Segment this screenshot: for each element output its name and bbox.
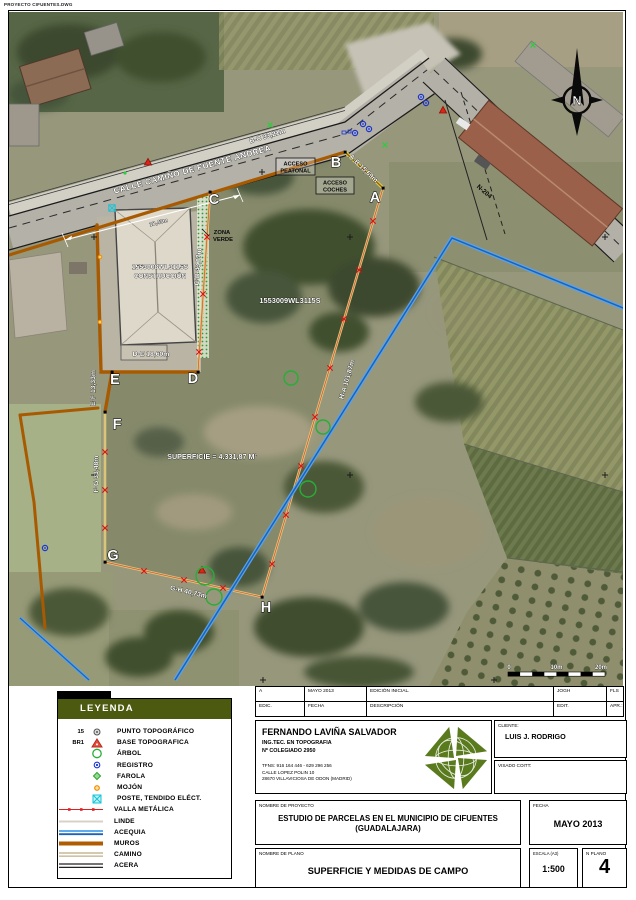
construction-ref-label: 1553008WL3115S: [132, 264, 189, 271]
legend-tab: [57, 691, 111, 698]
acceso-coches-label: ACCESO COCHES: [316, 177, 354, 194]
svg-text:ACCESO: ACCESO: [284, 162, 309, 168]
svg-text:COCHES: COCHES: [323, 188, 347, 194]
fecha-value: MAYO 2013: [530, 808, 626, 829]
vertex-e: E: [110, 372, 120, 388]
legend-item-linde: LINDE: [58, 816, 231, 827]
legend-item-farola: FAROLA: [58, 771, 231, 782]
mojon-icon: [87, 783, 107, 793]
dim-ef: E-F 13,33m: [90, 370, 97, 406]
arbol-icon: [87, 748, 107, 759]
author-box: FERNANDO LAVIÑA SALVADOR ING.TEC. EN TOP…: [255, 720, 492, 794]
legend-title: LEYENDA: [58, 699, 231, 719]
escala-value: 1:500: [530, 856, 577, 874]
legend-item-punto: 15 PUNTO TOPOGRÁFICO: [58, 726, 231, 737]
legend-item-valla: VALLA METÁLICA: [58, 804, 231, 815]
vertex-a: A: [370, 190, 381, 206]
construction-sub-label: CONSTRUCCIÓN: [134, 271, 187, 280]
nplano-box: N PLANO 4: [582, 848, 627, 888]
title-block: A MAYO 2013 EDICIÓN INICIAL. JOGH FLS ED…: [255, 686, 627, 888]
muros-line-sample: [58, 839, 104, 848]
legend-item-registro: REGISTRO: [58, 760, 231, 771]
vertex-g: G: [107, 548, 118, 564]
revision-table: A MAYO 2013 EDICIÓN INICIAL. JOGH FLS ED…: [255, 686, 624, 717]
acera-line-sample: [58, 861, 104, 870]
project-box: NOMBRE DE PROYECTO ESTUDIO DE PARCELAS E…: [255, 800, 521, 845]
escala-box: ESCALA (A3) 1:500: [529, 848, 578, 888]
north-label: N: [572, 94, 581, 108]
legend-item-arbol: ÁRBOL: [58, 748, 231, 759]
vertex-d: D: [188, 371, 198, 387]
svg-text:10m: 10m: [550, 665, 562, 671]
legend-panel: LEYENDA 15 PUNTO TOPOGRÁFICO BR1 BASE TO…: [57, 698, 232, 879]
parcel-ref-label: 1553009WL3115S: [259, 296, 320, 305]
doc-filename: PROYECTO CIFUENTES.DWG: [4, 2, 73, 7]
vertex-b: B: [331, 155, 341, 171]
vertex-f: F: [113, 417, 122, 433]
project-name: ESTUDIO DE PARCELAS EN EL MUNICIPIO DE C…: [256, 808, 520, 834]
legend-item-camino: CAMINO: [58, 849, 231, 860]
company-logo: [422, 724, 490, 794]
legend-item-acequia: ACEQUIA: [58, 827, 231, 838]
punto-topografico-icon: [87, 727, 107, 737]
camino-line-sample: [58, 850, 104, 859]
plan-box: NOMBRE DE PLANO SUPERFICIE Y MEDIDAS DE …: [255, 848, 521, 888]
client-box: CLIENTE: LUIS J. RODRIGO: [494, 720, 627, 758]
aerial-map: CALLE CAMIÑO DE FUENTE ANDREA 18,43m B-C…: [9, 12, 623, 686]
acceso-peatonal-label: ACCESO PEATONAL: [276, 158, 315, 175]
poste-icon: [87, 794, 107, 804]
dim-fg: F-G 33,48m: [93, 456, 100, 493]
plan-sheet: PROYECTO CIFUENTES.DWG: [0, 0, 636, 900]
legend-item-acera: ACERA: [58, 860, 231, 871]
acequia-line-sample: [58, 828, 104, 837]
superficie-label: SUPERFICIE = 4.331,87 M²: [167, 452, 257, 461]
construction-building: [115, 208, 196, 360]
registro-icon: [87, 760, 107, 770]
svg-text:VERDE: VERDE: [213, 237, 233, 243]
client-name: LUIS J. RODRIGO: [495, 728, 626, 741]
legend-item-mojon: MOJÓN: [58, 782, 231, 793]
svg-text:PEATONAL: PEATONAL: [280, 169, 311, 175]
svg-text:20m: 20m: [595, 665, 607, 671]
base-topografica-icon: [87, 738, 107, 748]
farola-icon: [87, 771, 107, 781]
svg-text:ZONA: ZONA: [214, 230, 231, 236]
plan-name: SUPERFICIE Y MEDIDAS DE CAMPO: [256, 856, 520, 876]
vertex-h: H: [261, 600, 271, 616]
linde-line-sample: [58, 817, 104, 826]
visado-box: VISADO COITT:: [494, 760, 627, 794]
dim-de: D-E 18,60m: [133, 351, 170, 358]
mojon-icon: [98, 255, 102, 259]
vertex-c: C: [209, 192, 220, 208]
map-canvas: CALLE CAMIÑO DE FUENTE ANDREA 18,43m B-C…: [9, 12, 623, 686]
fecha-box: FECHA MAYO 2013: [529, 800, 627, 845]
svg-text:ACCESO: ACCESO: [323, 181, 348, 187]
valla-line-sample: [58, 805, 104, 814]
legend-item-muros: MUROS: [58, 838, 231, 849]
nplano-value: 4: [583, 856, 626, 879]
legend-item-base: BR1 BASE TOPOGRAFICA: [58, 737, 231, 748]
legend-item-poste: POSTE, TENDIDO ELÉCT.: [58, 793, 231, 804]
